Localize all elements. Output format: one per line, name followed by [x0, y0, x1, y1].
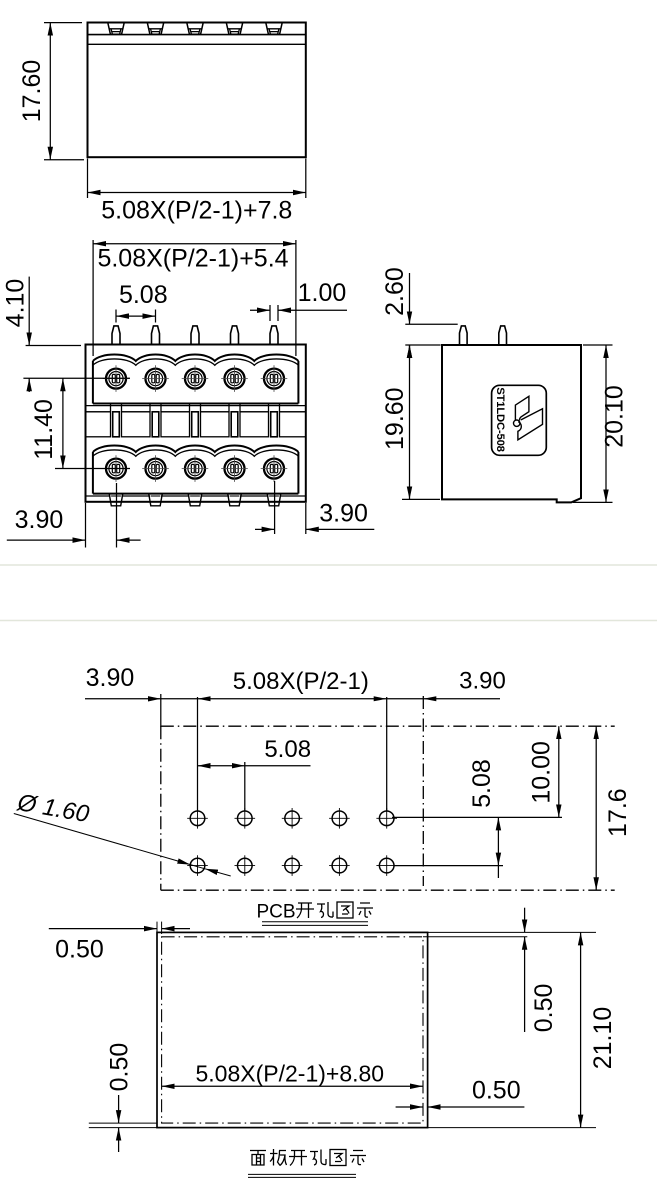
svg-text:3.90: 3.90 — [86, 664, 135, 692]
svg-text:20.10: 20.10 — [601, 385, 629, 448]
svg-text:2.60: 2.60 — [381, 267, 409, 316]
svg-text:5.08X(P/2-1)+7.8: 5.08X(P/2-1)+7.8 — [101, 197, 292, 225]
svg-text:PCB: PCB — [256, 902, 295, 923]
svg-text:11.40: 11.40 — [30, 399, 58, 460]
svg-text:21.10: 21.10 — [589, 1007, 617, 1070]
svg-text:5.08X(P/2-1)+5.4: 5.08X(P/2-1)+5.4 — [97, 245, 288, 273]
svg-text:0.50: 0.50 — [55, 936, 104, 964]
svg-text:1.00: 1.00 — [298, 279, 347, 307]
svg-text:17.6: 17.6 — [604, 788, 632, 837]
svg-text:0.50: 0.50 — [106, 1043, 134, 1092]
svg-text:17.60: 17.60 — [18, 60, 46, 123]
svg-text:4.10: 4.10 — [2, 279, 30, 328]
svg-text:3.90: 3.90 — [319, 500, 368, 528]
svg-text:5.08X(P/2-1): 5.08X(P/2-1) — [233, 668, 369, 695]
svg-text:ST1LDC-508: ST1LDC-508 — [494, 387, 506, 452]
svg-text:5.08: 5.08 — [468, 759, 496, 808]
svg-text:5.08X(P/2-1)+8.80: 5.08X(P/2-1)+8.80 — [196, 1061, 385, 1087]
svg-text:0.50: 0.50 — [472, 1077, 521, 1105]
svg-text:5.08: 5.08 — [119, 281, 168, 309]
svg-text:3.90: 3.90 — [459, 668, 506, 695]
svg-text:10.00: 10.00 — [528, 741, 556, 804]
svg-text:19.60: 19.60 — [381, 387, 409, 450]
svg-text:3.90: 3.90 — [15, 506, 64, 534]
svg-text:5.08: 5.08 — [264, 736, 311, 763]
svg-text:0.50: 0.50 — [530, 984, 558, 1033]
